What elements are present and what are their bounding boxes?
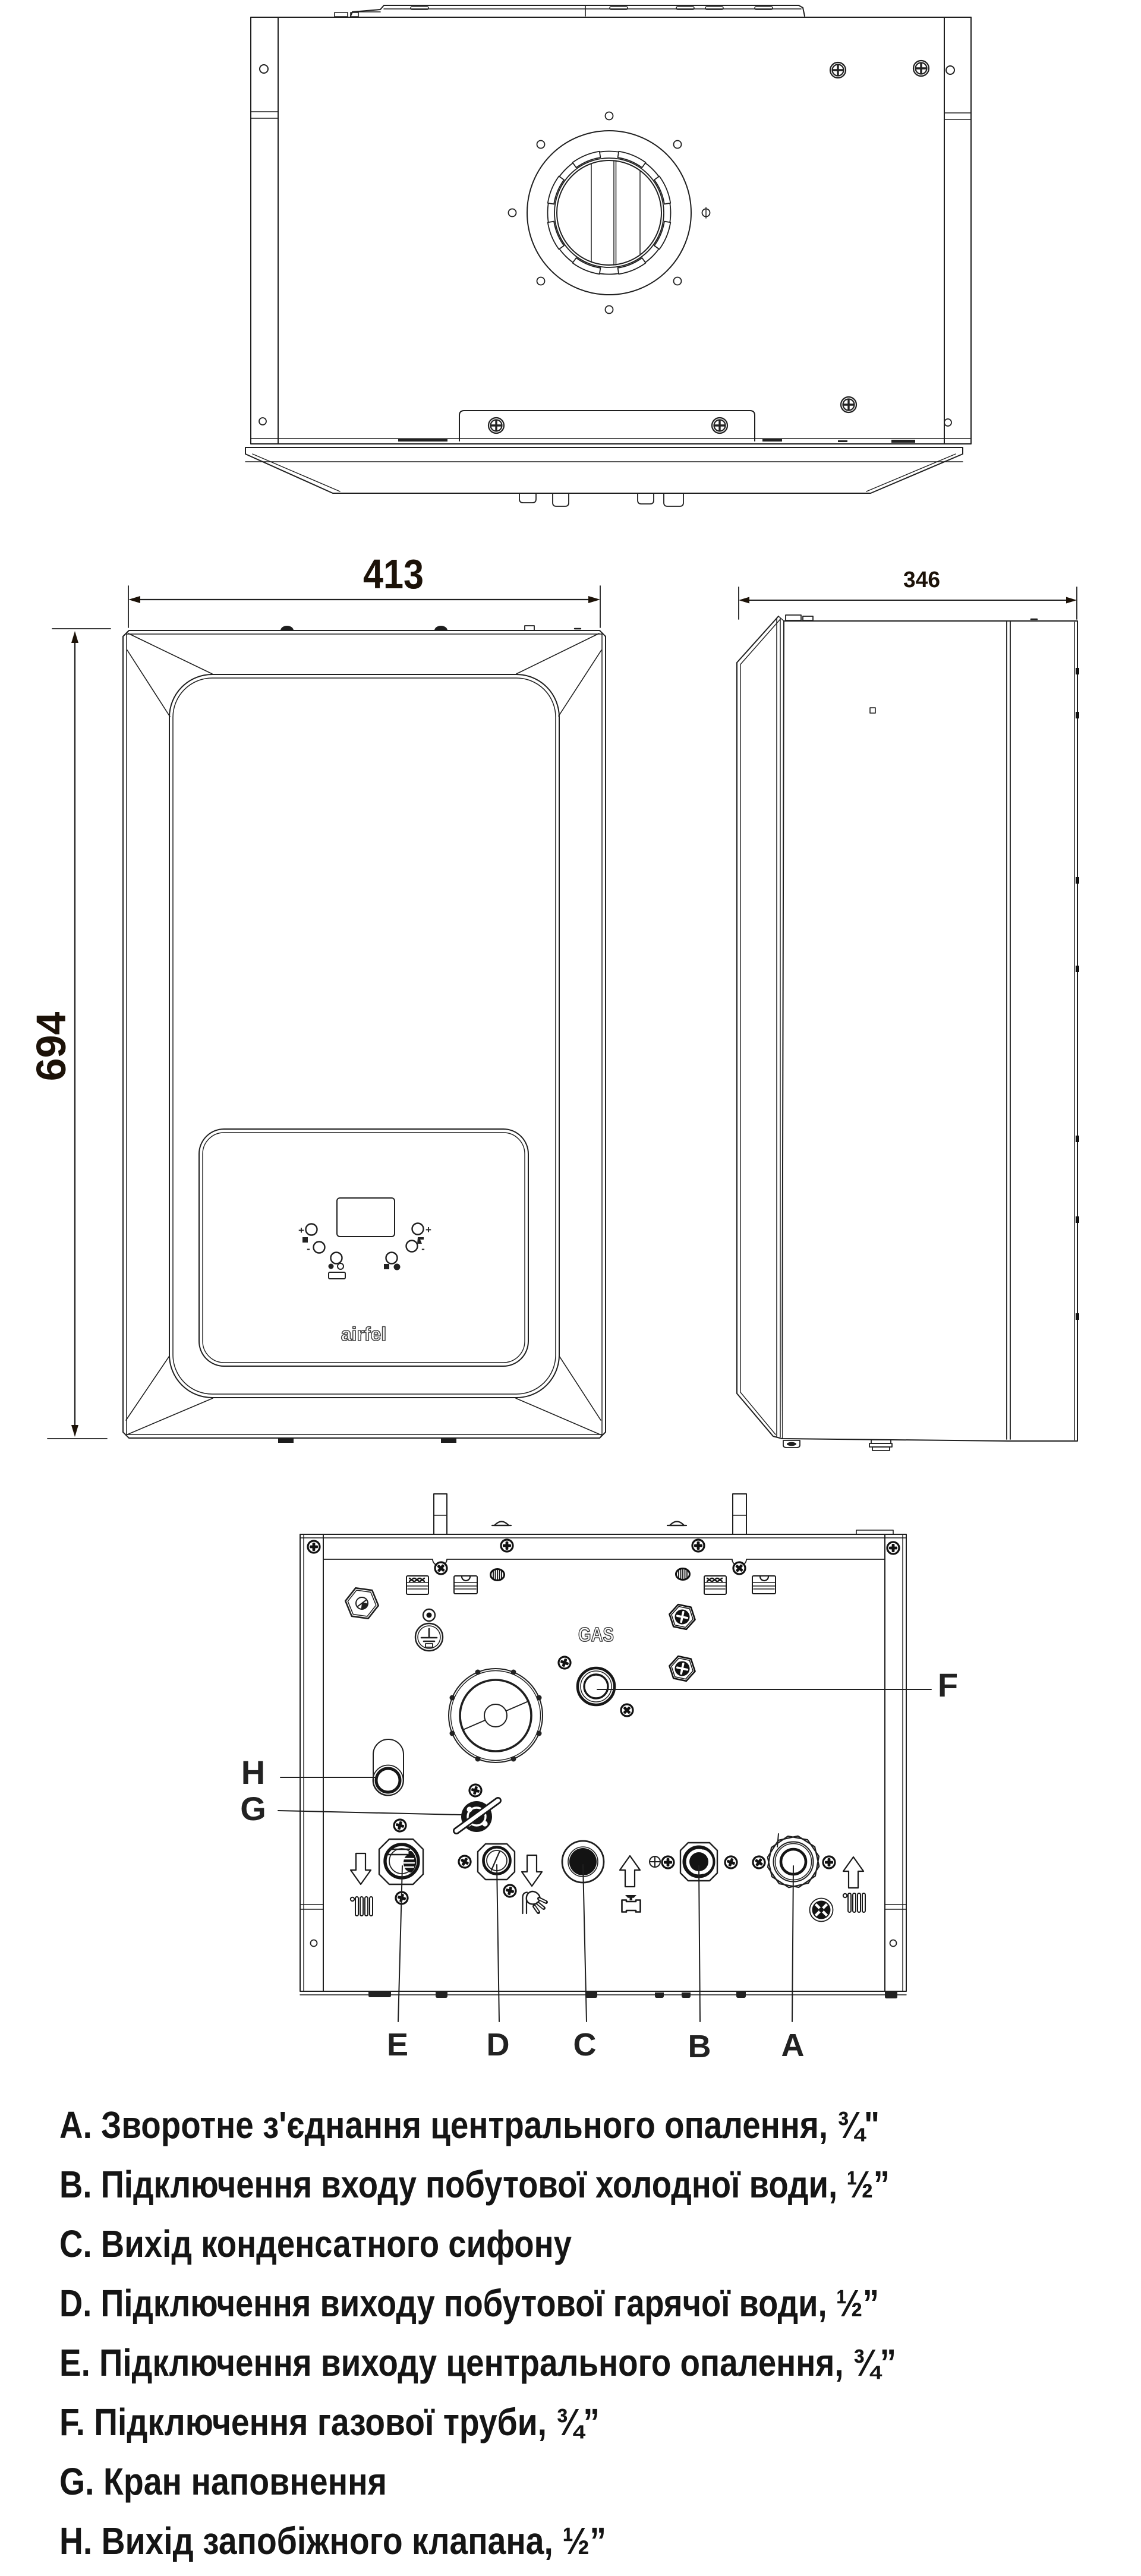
svg-text:H. Вихід запобіжного клапана,: H. Вихід запобіжного клапана, ½” <box>59 2520 606 2562</box>
svg-text:A. Зворотне з'єднання централь: A. Зворотне з'єднання центрального опале… <box>59 2104 880 2146</box>
svg-text:G: G <box>240 1790 266 1827</box>
svg-text:694: 694 <box>28 1012 74 1082</box>
svg-text:B. Підключення входу побутової: B. Підключення входу побутової холодної … <box>59 2163 890 2206</box>
svg-text:F: F <box>938 1666 958 1704</box>
svg-text:413: 413 <box>363 551 424 597</box>
svg-text:D: D <box>487 2027 510 2063</box>
svg-text:+: + <box>298 1225 304 1236</box>
svg-text:F. Підключення газової труби,: F. Підключення газової труби, ¾” <box>59 2401 600 2443</box>
svg-text:-: - <box>307 1243 310 1254</box>
svg-text:H: H <box>241 1754 265 1791</box>
svg-text:+: + <box>425 1224 431 1235</box>
svg-text:B: B <box>688 2029 711 2064</box>
svg-text:C. Вихід конденсатного сифону: C. Вихід конденсатного сифону <box>59 2222 572 2265</box>
svg-text:D. Підключення виходу побутово: D. Підключення виходу побутової гарячої … <box>59 2282 879 2325</box>
svg-text:-: - <box>421 1243 425 1254</box>
svg-text:airfel: airfel <box>341 1323 386 1345</box>
svg-text:C: C <box>573 2027 597 2063</box>
svg-text:346: 346 <box>903 567 940 592</box>
svg-text:E: E <box>387 2027 408 2063</box>
svg-text:A: A <box>781 2028 805 2063</box>
svg-text:E. Підключення виходу централь: E. Підключення виходу центрального опале… <box>59 2341 896 2384</box>
svg-text:GAS: GAS <box>578 1623 614 1645</box>
svg-text:G. Кран наповнення: G. Кран наповнення <box>59 2460 387 2503</box>
